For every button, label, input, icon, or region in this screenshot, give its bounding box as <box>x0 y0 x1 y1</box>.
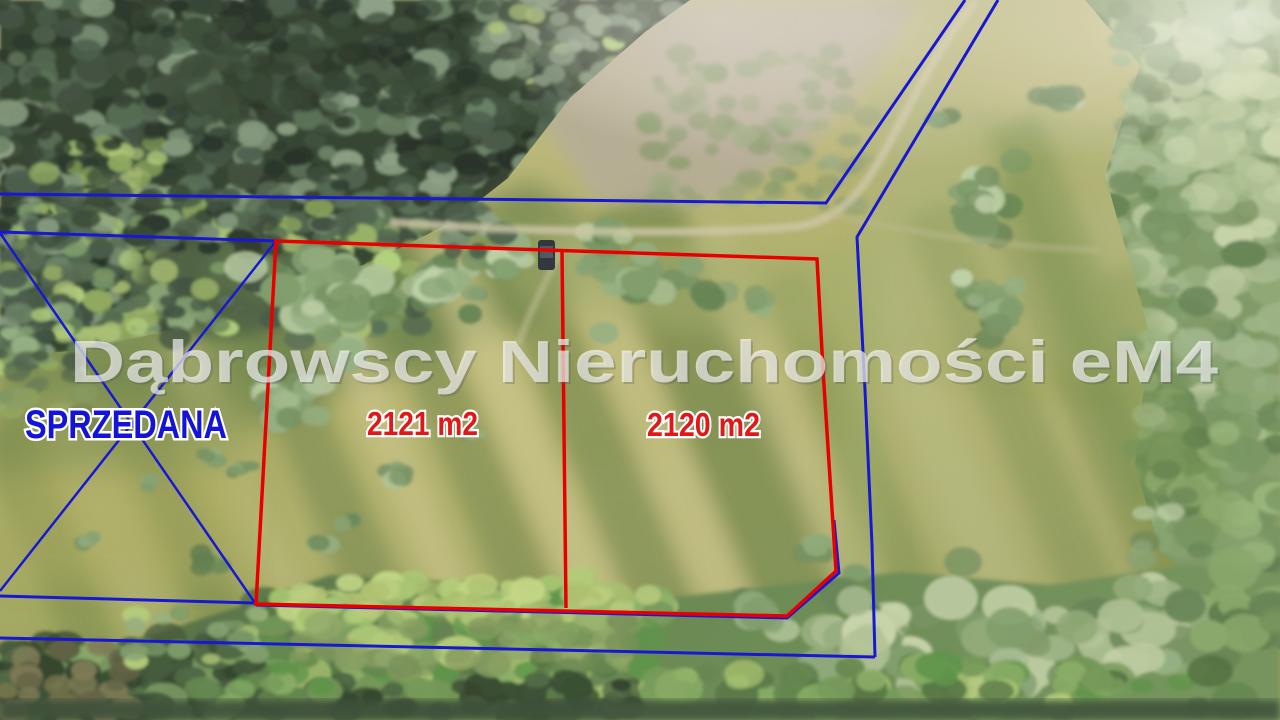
svg-text:2120 m2: 2120 m2 <box>647 406 760 443</box>
svg-text:Dąbrowscy Nieruchomości eM4: Dąbrowscy Nieruchomości eM4 <box>70 329 1218 395</box>
svg-text:SPRZEDANA: SPRZEDANA <box>25 403 227 447</box>
svg-text:2121 m2: 2121 m2 <box>367 405 478 442</box>
